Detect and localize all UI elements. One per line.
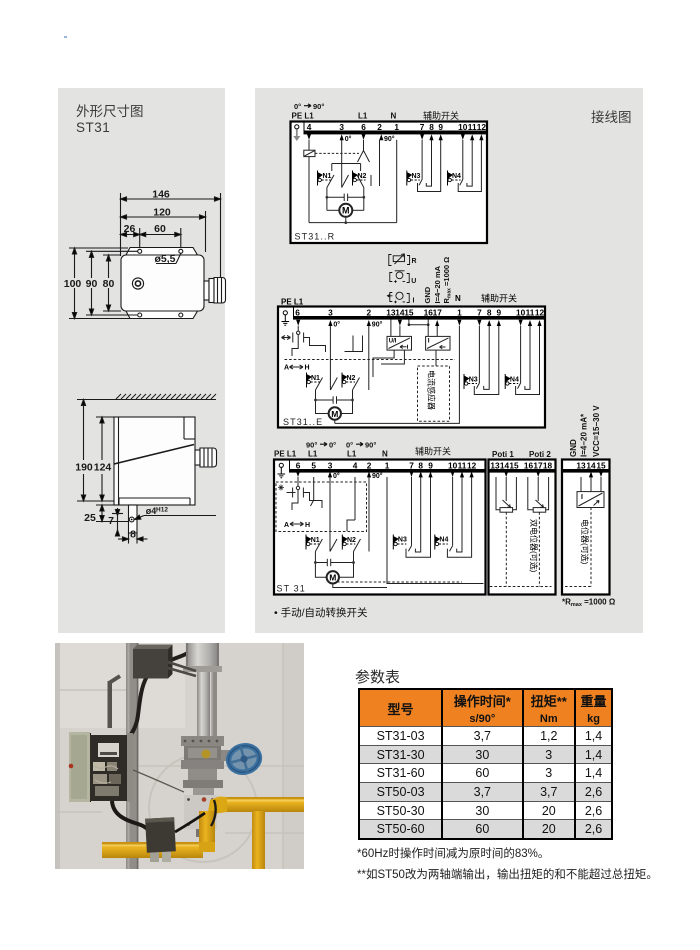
- svg-text:10: 10: [516, 307, 526, 317]
- svg-text:*Rmax =1000 Ω: *Rmax =1000 Ω: [562, 598, 616, 609]
- svg-text:GND: GND: [569, 439, 578, 457]
- svg-text:I=4−20 mA: I=4−20 mA: [433, 265, 442, 303]
- svg-text:2: 2: [367, 460, 372, 470]
- svg-text:N: N: [391, 112, 397, 121]
- svg-text:90°: 90°: [372, 472, 383, 480]
- svg-text:90°: 90°: [313, 102, 324, 111]
- svg-text:Rmax =1000 Ω: Rmax =1000 Ω: [442, 257, 453, 304]
- svg-text:H: H: [305, 522, 310, 529]
- svg-text:3: 3: [328, 307, 333, 317]
- svg-text:辅助开关: 辅助开关: [481, 293, 517, 304]
- svg-text:I: I: [581, 494, 583, 501]
- svg-text:90: 90: [86, 278, 98, 290]
- svg-text:11: 11: [468, 122, 477, 132]
- svg-text:2: 2: [377, 122, 382, 132]
- svg-text:N1: N1: [311, 537, 320, 544]
- svg-text:N1: N1: [311, 375, 320, 382]
- svg-text:3: 3: [339, 122, 344, 132]
- svg-text:15: 15: [404, 307, 414, 317]
- svg-text:90°: 90°: [372, 321, 383, 329]
- svg-text:9: 9: [496, 307, 501, 317]
- svg-text:GND: GND: [423, 286, 432, 303]
- svg-text:13: 13: [576, 460, 586, 470]
- svg-text:0°: 0°: [329, 441, 336, 450]
- svg-text:N4: N4: [510, 377, 519, 384]
- svg-text:10: 10: [458, 122, 468, 132]
- svg-text:L1: L1: [347, 450, 357, 459]
- svg-text:电流感应器: 电流感应器: [427, 370, 437, 410]
- svg-text:ø5,5: ø5,5: [154, 253, 175, 265]
- svg-text:N: N: [382, 450, 388, 459]
- svg-text:PE L1: PE L1: [281, 298, 304, 307]
- svg-text:0°: 0°: [333, 321, 340, 329]
- svg-text:17: 17: [533, 460, 543, 470]
- svg-text:I=4−20 mA*: I=4−20 mA*: [580, 413, 589, 457]
- svg-text:10: 10: [448, 460, 458, 470]
- svg-text:H12: H12: [156, 507, 168, 514]
- svg-text:辅助开关: 辅助开关: [415, 446, 451, 457]
- svg-text:7: 7: [420, 122, 425, 132]
- svg-text:双电位器(可选): 双电位器(可选): [529, 519, 539, 573]
- svg-text:14: 14: [586, 460, 596, 470]
- svg-text:11: 11: [458, 460, 467, 470]
- svg-text:I: I: [413, 298, 415, 305]
- svg-text:13: 13: [490, 460, 500, 470]
- svg-text:1: 1: [394, 122, 399, 132]
- svg-text:A: A: [284, 365, 289, 372]
- svg-text:0°: 0°: [333, 472, 340, 480]
- svg-text:ST 31: ST 31: [277, 584, 306, 594]
- svg-text:9: 9: [428, 460, 433, 470]
- svg-text:4: 4: [353, 460, 358, 470]
- svg-text:12: 12: [477, 122, 487, 132]
- svg-text:8: 8: [418, 460, 423, 470]
- svg-text:Poti 1: Poti 1: [492, 450, 514, 459]
- svg-text:N3: N3: [412, 173, 421, 180]
- svg-text:VCC=15−30 V: VCC=15−30 V: [592, 405, 601, 457]
- svg-text:N3: N3: [398, 537, 407, 544]
- svg-text:18: 18: [543, 460, 553, 470]
- svg-text:PE L1: PE L1: [292, 112, 315, 121]
- svg-text:26: 26: [124, 223, 136, 235]
- svg-text:14: 14: [500, 460, 510, 470]
- svg-text:5: 5: [311, 460, 316, 470]
- svg-text:N2: N2: [347, 375, 356, 382]
- svg-text:15: 15: [509, 460, 519, 470]
- svg-text:11: 11: [526, 307, 535, 317]
- svg-text:A: A: [284, 522, 289, 529]
- svg-text:7: 7: [108, 515, 114, 527]
- svg-text:16: 16: [524, 460, 534, 470]
- svg-text:1: 1: [385, 460, 390, 470]
- svg-text:N2: N2: [347, 537, 356, 544]
- svg-text:6: 6: [296, 460, 301, 470]
- svg-text:M: M: [342, 206, 350, 216]
- svg-text:电位器(可选): 电位器(可选): [580, 519, 590, 565]
- svg-text:H: H: [305, 365, 310, 372]
- svg-text:12: 12: [535, 307, 545, 317]
- svg-text:90°: 90°: [365, 441, 376, 450]
- svg-text:6: 6: [295, 307, 300, 317]
- svg-text:U: U: [411, 278, 416, 285]
- svg-text:60: 60: [154, 223, 166, 235]
- svg-text:0°: 0°: [294, 102, 301, 111]
- svg-text:190: 190: [75, 462, 93, 474]
- svg-text:ST31..E: ST31..E: [283, 417, 323, 427]
- svg-text:Poti 2: Poti 2: [529, 450, 551, 459]
- svg-text:M: M: [329, 573, 336, 583]
- svg-text:1: 1: [457, 307, 462, 317]
- svg-text:6: 6: [361, 122, 366, 132]
- svg-text:M: M: [331, 409, 338, 419]
- svg-text:N4: N4: [452, 173, 461, 180]
- svg-text:N: N: [455, 294, 461, 303]
- svg-text:4: 4: [307, 122, 312, 132]
- svg-text:8: 8: [487, 307, 492, 317]
- svg-text:L1: L1: [308, 450, 318, 459]
- svg-text:PE L1: PE L1: [274, 450, 297, 459]
- svg-text:12: 12: [467, 460, 477, 470]
- svg-text:15: 15: [596, 460, 606, 470]
- svg-text:7: 7: [477, 307, 482, 317]
- svg-text:N1: N1: [323, 173, 332, 180]
- svg-text:8: 8: [130, 529, 136, 541]
- svg-text:2: 2: [366, 307, 371, 317]
- svg-text:R: R: [412, 258, 417, 265]
- svg-text:90°: 90°: [384, 135, 395, 143]
- svg-text:146: 146: [152, 189, 170, 201]
- svg-text:ST31..R: ST31..R: [295, 232, 336, 242]
- svg-text:N3: N3: [469, 377, 478, 384]
- svg-text:I: I: [428, 338, 430, 345]
- svg-text:9: 9: [438, 122, 443, 132]
- svg-text:7: 7: [409, 460, 414, 470]
- svg-text:17: 17: [433, 307, 443, 317]
- svg-text:25: 25: [84, 512, 96, 524]
- svg-text:L1: L1: [358, 112, 368, 121]
- svg-text:80: 80: [103, 278, 115, 290]
- svg-text:100: 100: [64, 278, 82, 290]
- svg-text:0°: 0°: [346, 441, 353, 450]
- svg-text:8: 8: [429, 122, 434, 132]
- svg-text:124: 124: [94, 462, 112, 474]
- svg-text:辅助开关: 辅助开关: [423, 110, 459, 121]
- svg-text:N4: N4: [439, 537, 448, 544]
- svg-text:ø4: ø4: [146, 506, 157, 516]
- svg-text:90°: 90°: [306, 441, 317, 450]
- svg-text:120: 120: [153, 207, 171, 219]
- svg-text:3: 3: [328, 460, 333, 470]
- svg-text:N2: N2: [358, 173, 367, 180]
- svg-text:U/I: U/I: [389, 339, 397, 345]
- svg-text:0°: 0°: [345, 135, 352, 143]
- svg-text:• 手动/自动转换开关: • 手动/自动转换开关: [274, 606, 368, 619]
